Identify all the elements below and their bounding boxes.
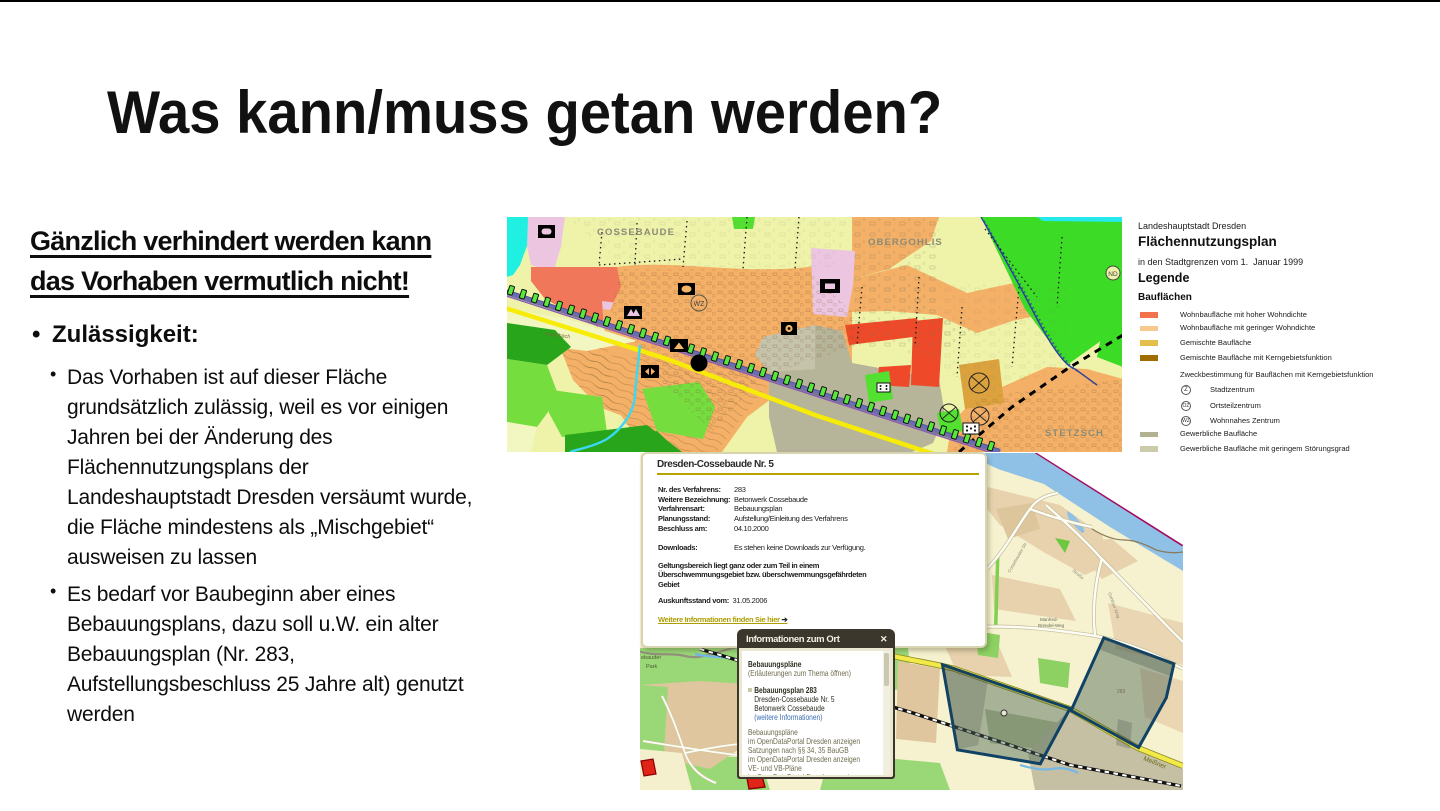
svg-text:OBERGOHLIS: OBERGOHLIS — [868, 237, 943, 248]
svg-text:ebauder: ebauder — [641, 655, 661, 661]
svg-text:283: 283 — [1117, 689, 1126, 695]
svg-text:Manfred-: Manfred- — [1040, 617, 1059, 622]
svg-text:ND: ND — [1108, 271, 1118, 278]
svg-text:WZ: WZ — [694, 301, 706, 308]
svg-text:Brendel-Weg: Brendel-Weg — [1038, 623, 1065, 628]
svg-text:Park: Park — [646, 664, 658, 670]
svg-text:COSSEBAUDE: COSSEBAUDE — [597, 227, 675, 238]
svg-text:STETZSCH: STETZSCH — [1045, 428, 1104, 439]
